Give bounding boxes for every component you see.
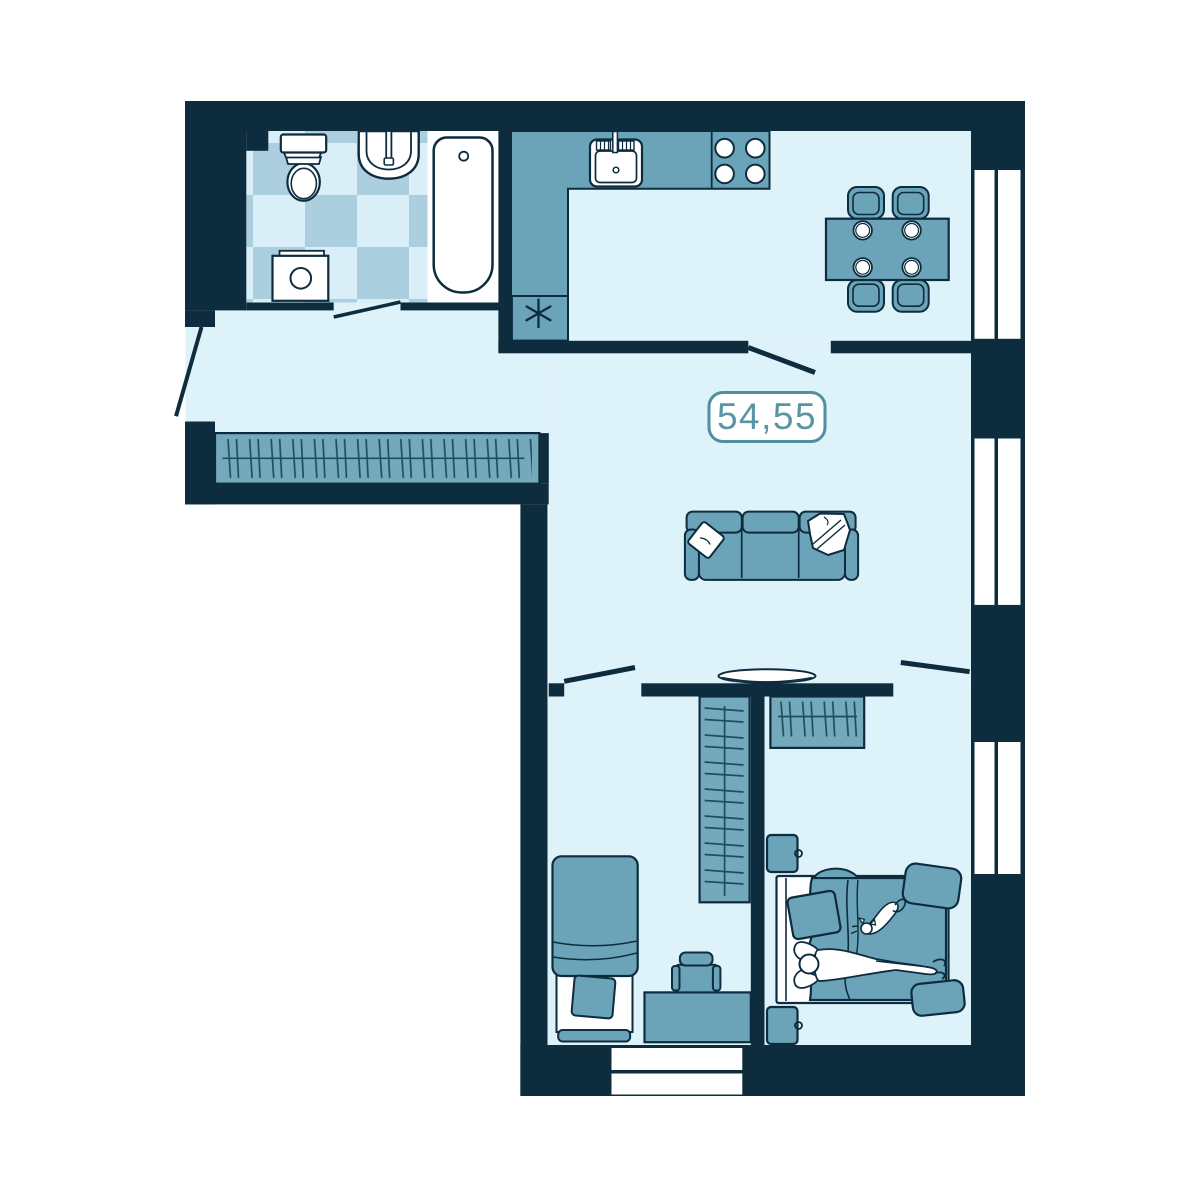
svg-text:54,55: 54,55	[717, 396, 817, 437]
